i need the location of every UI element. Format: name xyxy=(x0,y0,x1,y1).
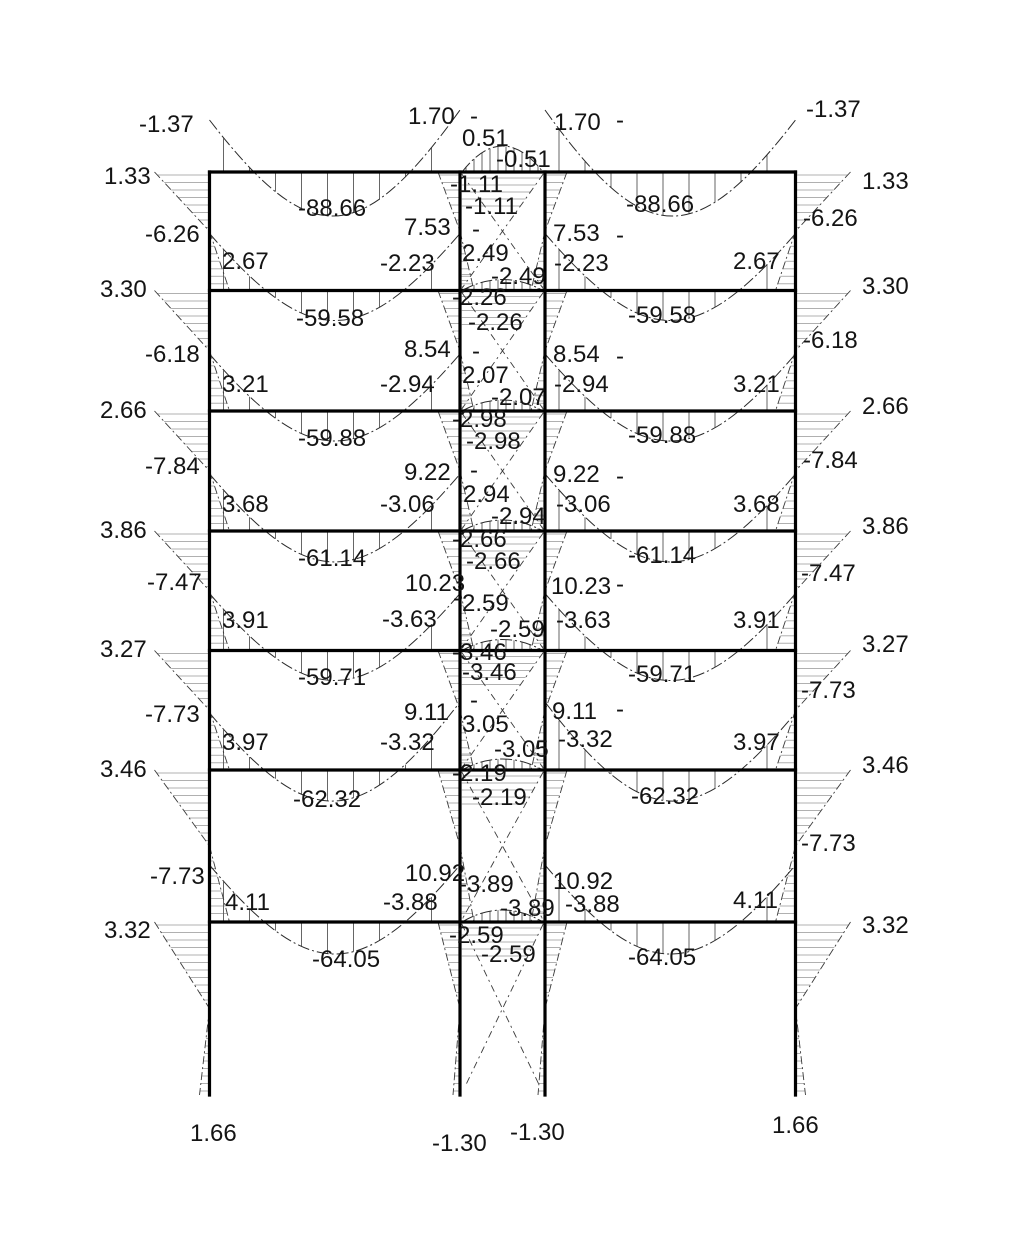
moment-label: -3.06 xyxy=(380,491,435,518)
moment-label: 3.32 xyxy=(104,917,151,944)
moment-label: - xyxy=(453,585,461,612)
moment-label: 7.53 xyxy=(404,214,451,241)
moment-diagram-svg: -1.371.70-0.51-0.511.70--1.371.33-88.66-… xyxy=(0,0,1010,1256)
moment-label: 9.22 xyxy=(404,459,451,486)
moment-label: -7.47 xyxy=(801,560,856,587)
moment-label: -1.37 xyxy=(139,111,194,138)
moment-label: -6.18 xyxy=(803,327,858,354)
moment-label: -3.32 xyxy=(558,726,613,753)
moment-label: 1.33 xyxy=(862,168,909,195)
moment-label: 9.11 xyxy=(404,699,449,726)
moment-label: - xyxy=(616,571,624,598)
moment-label: 3.46 xyxy=(862,752,909,779)
moment-value-labels: -1.371.70-0.51-0.511.70--1.371.33-88.66-… xyxy=(100,96,909,1157)
moment-label: -7.73 xyxy=(801,677,856,704)
moment-label: 3.86 xyxy=(862,513,909,540)
moment-label: -7.47 xyxy=(147,569,202,596)
moment-label: -6.18 xyxy=(145,341,200,368)
moment-label: -1.37 xyxy=(806,96,861,123)
moment-label: 3.30 xyxy=(100,276,147,303)
moment-label: -2.23 xyxy=(380,250,435,277)
moment-label: 3.32 xyxy=(862,912,909,939)
moment-label: 1.66 xyxy=(772,1112,819,1139)
moment-label: 1.70 xyxy=(554,109,601,136)
moment-label: -3.05 xyxy=(494,736,549,763)
moment-label: -3.89 xyxy=(500,895,555,922)
moment-label: -7.73 xyxy=(145,701,200,728)
moment-label: -2.26 xyxy=(468,309,523,336)
moment-label: 3.46 xyxy=(100,756,147,783)
moment-label: 3.05 xyxy=(462,711,509,738)
moment-label: -2.98 xyxy=(466,428,521,455)
moment-label: -61.14 xyxy=(298,545,366,572)
moment-label: - xyxy=(616,107,624,134)
moment-label: -64.05 xyxy=(628,944,696,971)
moment-label: -7.73 xyxy=(150,863,205,890)
moment-label: 2.66 xyxy=(100,397,147,424)
moment-label: -6.26 xyxy=(803,205,858,232)
moment-label: -3.63 xyxy=(382,606,437,633)
moment-label: 2.67 xyxy=(733,248,780,275)
moment-label: -1.30 xyxy=(432,1130,487,1157)
moment-label: -2.59 xyxy=(481,941,536,968)
moment-label: -3.88 xyxy=(383,889,438,916)
moment-label: - xyxy=(616,463,624,490)
moment-label: -3.06 xyxy=(556,491,611,518)
moment-label: - xyxy=(616,696,624,723)
moment-label: - xyxy=(616,222,624,249)
moment-label: -2.94 xyxy=(380,371,435,398)
moment-label: 10.92 xyxy=(405,860,465,887)
moment-label: 9.11 xyxy=(552,698,597,725)
moment-label: 8.54 xyxy=(553,341,600,368)
moment-label: -7.84 xyxy=(803,447,858,474)
moment-label: -64.05 xyxy=(312,946,380,973)
moment-label: -0.51 xyxy=(496,146,551,173)
moment-label: - xyxy=(470,687,478,714)
moment-label: -88.66 xyxy=(626,191,694,218)
moment-label: -1.30 xyxy=(510,1119,565,1146)
moment-label: -2.19 xyxy=(472,784,527,811)
moment-label: 3.68 xyxy=(733,491,780,518)
moment-label: 3.91 xyxy=(222,607,269,634)
moment-label: -3.63 xyxy=(556,607,611,634)
structural-moment-diagram-page: -1.371.70-0.51-0.511.70--1.371.33-88.66-… xyxy=(0,0,1010,1256)
moment-label: 4.11 xyxy=(733,887,778,914)
moment-label: 9.22 xyxy=(553,461,600,488)
moment-label: 1.33 xyxy=(104,163,151,190)
moment-label: 3.86 xyxy=(100,517,147,544)
moment-label: -3.32 xyxy=(380,729,435,756)
moment-label: -62.32 xyxy=(293,786,361,813)
moment-label: 2.66 xyxy=(862,393,909,420)
moment-label: 3.21 xyxy=(733,371,780,398)
moment-label: -88.66 xyxy=(298,195,366,222)
moment-label: - xyxy=(470,457,478,484)
moment-label: -3.46 xyxy=(462,659,517,686)
moment-label: 7.53 xyxy=(553,220,600,247)
moment-label: -7.73 xyxy=(801,830,856,857)
moment-label: 8.54 xyxy=(404,336,451,363)
moment-label: 4.11 xyxy=(225,889,270,916)
moment-label: 3.21 xyxy=(222,371,269,398)
moment-label: 3.27 xyxy=(862,631,909,658)
moment-label: 3.68 xyxy=(222,491,269,518)
moment-label: -2.19 xyxy=(452,760,507,787)
moment-label: -62.32 xyxy=(631,783,699,810)
moment-label: - xyxy=(616,343,624,370)
moment-label: 2.59 xyxy=(462,590,509,617)
moment-label: -59.58 xyxy=(628,302,696,329)
moment-label: -61.14 xyxy=(628,542,696,569)
moment-label: -59.58 xyxy=(296,305,364,332)
moment-label: 3.27 xyxy=(100,636,147,663)
moment-label: 2.67 xyxy=(222,248,269,275)
moment-label: -59.71 xyxy=(298,664,366,691)
moment-label: 1.66 xyxy=(190,1120,237,1147)
moment-label: -2.66 xyxy=(466,548,521,575)
moment-label: -2.94 xyxy=(554,371,609,398)
moment-label: -2.26 xyxy=(452,284,507,311)
moment-label: 3.91 xyxy=(733,607,780,634)
moment-label: -7.84 xyxy=(145,453,200,480)
moment-label: - xyxy=(472,216,480,243)
moment-label: 10.23 xyxy=(551,573,611,600)
moment-label: - xyxy=(472,338,480,365)
moment-label: -3.89 xyxy=(459,871,514,898)
moment-label: -6.26 xyxy=(145,221,200,248)
moment-label: -3.88 xyxy=(565,891,620,918)
moment-label: 3.97 xyxy=(222,729,269,756)
moment-label: 3.30 xyxy=(862,273,909,300)
moment-label: 1.70 xyxy=(408,103,455,130)
moment-label: -59.71 xyxy=(628,661,696,688)
moment-label: -2.23 xyxy=(554,250,609,277)
moment-label: 3.97 xyxy=(733,729,780,756)
moment-label: -59.88 xyxy=(628,422,696,449)
moment-label: -59.88 xyxy=(298,425,366,452)
